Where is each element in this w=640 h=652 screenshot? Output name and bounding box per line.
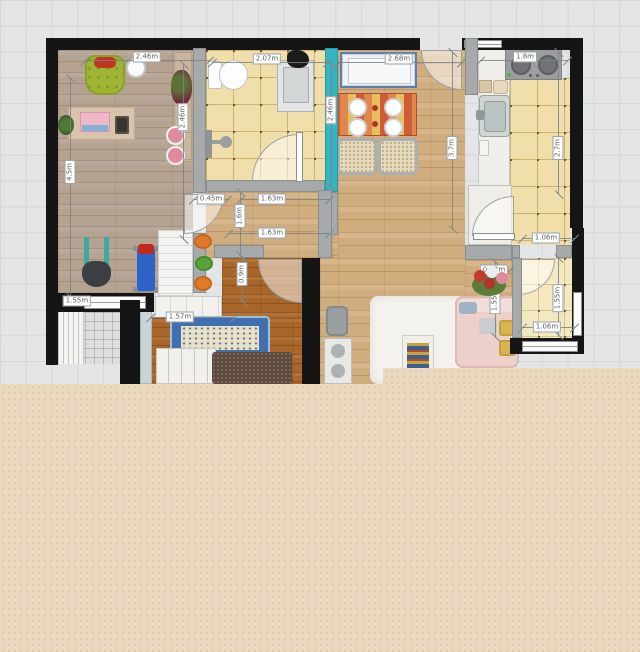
media-column[interactable] (324, 338, 352, 384)
rug-center (181, 326, 259, 350)
toilet[interactable] (208, 60, 247, 88)
beige-overlay-bottom (0, 384, 640, 652)
plate-3 (348, 118, 367, 137)
bloom-pink (496, 272, 508, 284)
desk-plant[interactable] (58, 115, 74, 135)
elliptical-machine[interactable] (82, 237, 112, 290)
wall-balcony-top-b[interactable] (556, 245, 572, 258)
wall-study-bath[interactable] (193, 48, 206, 193)
dim-label: 1.06m (532, 233, 560, 244)
wall-bedroom-right[interactable] (302, 258, 320, 384)
stove-knob-2 (536, 74, 539, 77)
dim-label: 2.46m (178, 103, 189, 131)
dim-label: 3.7m (447, 136, 458, 160)
bathrobe-black[interactable] (287, 50, 309, 68)
dim-label: 1.6m (235, 204, 246, 228)
dish-rack[interactable] (479, 140, 489, 156)
dim-label: 2.07m (253, 54, 281, 65)
bench-pad (137, 248, 155, 291)
bookshelf-white[interactable] (158, 230, 193, 296)
elliptical-base (82, 261, 111, 287)
counter-board-2[interactable] (493, 80, 508, 94)
dish-small-1 (372, 105, 378, 111)
dim-label: 0.9m (237, 262, 248, 286)
dim-label: 1.8m (513, 52, 537, 63)
wall-balcony-top-a[interactable] (512, 245, 520, 258)
plate-1 (348, 98, 367, 117)
dish-small-2 (372, 121, 378, 127)
window-balcony-right[interactable] (573, 292, 582, 336)
dim-label: 2.7m (553, 136, 564, 160)
floor-lamp-gray[interactable] (326, 306, 348, 336)
bathroom-door-leaf[interactable] (296, 132, 303, 182)
pot-green[interactable] (195, 256, 213, 271)
shower-pipe (206, 130, 212, 158)
wall-bedroom-left[interactable] (120, 300, 140, 384)
kitchen-sink[interactable] (479, 95, 510, 137)
shower-fixture[interactable] (206, 128, 232, 160)
speaker-knob-1 (331, 344, 345, 358)
bed-mattress[interactable] (156, 348, 216, 384)
wall-living-balcony[interactable] (512, 258, 522, 338)
counter-board-1[interactable] (479, 80, 492, 93)
bench-pillow (138, 244, 154, 254)
desk[interactable] (68, 107, 135, 140)
dim-label: 1.55m (63, 296, 91, 307)
wall-left[interactable] (46, 38, 58, 365)
stove-knob-1 (529, 74, 532, 77)
tablet[interactable] (115, 116, 129, 134)
dim-label: 2.46m (326, 96, 337, 124)
toilet-bowl (219, 60, 248, 90)
dim-label: 1.63m (258, 194, 286, 205)
weight-bench[interactable] (133, 244, 159, 294)
pot-orange-2[interactable] (194, 276, 212, 291)
dim-label: 4.5m (65, 160, 76, 184)
plate-2 (384, 98, 403, 117)
sofa-pink[interactable] (455, 296, 519, 368)
wall-bath-bottom[interactable] (206, 180, 325, 192)
dimline-kitchen-height (558, 52, 559, 195)
plant-large[interactable] (171, 70, 192, 105)
flower-bouquet[interactable] (470, 266, 510, 298)
bloom-red-2 (484, 278, 495, 289)
dining-chair-2[interactable] (378, 138, 418, 175)
window-balcony-bottom[interactable] (522, 341, 578, 352)
dim-label: 1.57m (166, 312, 194, 323)
dimline-dining-left (331, 64, 332, 188)
sofa-pillow-blue (459, 302, 477, 314)
dim-label: 2.68m (385, 54, 413, 65)
shower-inner (283, 67, 309, 103)
dim-label: 2.46m (133, 52, 161, 63)
dim-label: 1.06m (533, 322, 561, 333)
plate-4 (384, 118, 403, 137)
wall-kitchen-left-pillar[interactable] (465, 38, 478, 95)
sink-basin (484, 101, 506, 132)
pot-orange-1[interactable] (194, 234, 212, 249)
dim-label: 1.63m (258, 228, 286, 239)
armchair-green[interactable] (85, 55, 125, 95)
kitchen-door-leaf[interactable] (473, 233, 515, 240)
stove-indicator (507, 73, 511, 77)
sink-faucet (476, 110, 484, 120)
armchair-cushion (94, 57, 116, 68)
floorplan-canvas: 2.46m 2.07m 2.68m 1.8m 4.5m 2.46m 2.46m … (0, 0, 640, 652)
speaker-knob-2 (331, 364, 345, 378)
wall-top-left[interactable] (48, 38, 420, 50)
dining-table[interactable] (332, 93, 417, 136)
laptop-screen (82, 125, 108, 131)
wall-living-nook[interactable] (465, 245, 512, 260)
burner-2 (538, 55, 558, 75)
dim-label: 1.55m (553, 284, 564, 312)
dining-chair-1[interactable] (337, 138, 377, 175)
dim-label: 0.45m (197, 194, 225, 205)
dimline-study-height (183, 64, 184, 240)
ensuite-fixture[interactable] (58, 312, 84, 364)
dimline-study-left (70, 78, 71, 298)
bed-blanket-brown[interactable] (212, 352, 292, 384)
room-kitchen-floor[interactable] (510, 78, 570, 245)
wall-kitchen-right[interactable] (570, 38, 583, 228)
